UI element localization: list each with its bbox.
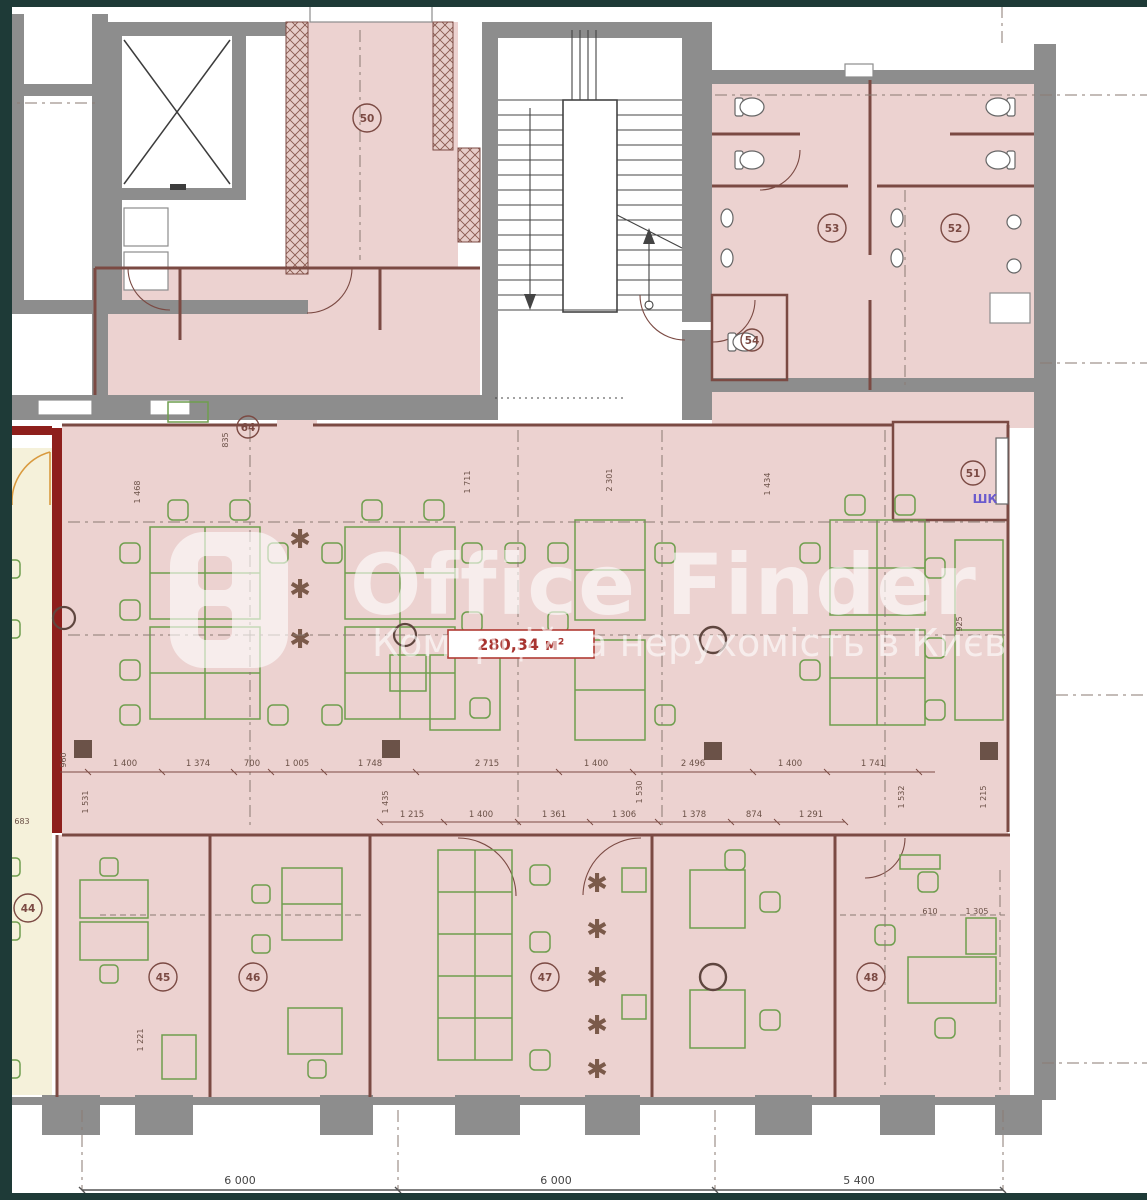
room-number-52: 52 xyxy=(948,223,963,235)
room-number-51: 51 xyxy=(966,468,981,480)
svg-text:✱: ✱ xyxy=(289,575,311,605)
dim-label-small: 610 xyxy=(922,907,937,916)
room-number-44: 44 xyxy=(21,903,36,915)
dim-label-v: 1 435 xyxy=(381,791,390,814)
dim-label-v: 960 xyxy=(59,752,68,767)
dim-label: 1 400 xyxy=(113,759,137,769)
dim-label: 1 748 xyxy=(358,759,382,769)
dim-label: 1 378 xyxy=(682,810,706,820)
room-number-47: 47 xyxy=(538,972,553,984)
dim-label: 874 xyxy=(746,810,762,820)
watermark-brand: Office Finder xyxy=(350,536,977,634)
watermark-tagline: Комерційна нерухомість в Києві xyxy=(372,621,1017,665)
dim-label-small: 1 305 xyxy=(966,907,989,916)
dim-label-v: 1 531 xyxy=(81,791,90,814)
radiator xyxy=(996,438,1008,504)
dim-label: 683 xyxy=(14,817,29,826)
svg-text:✱: ✱ xyxy=(586,869,608,899)
dim-label: 1 400 xyxy=(584,759,608,769)
svg-text:✱: ✱ xyxy=(586,1055,608,1085)
dim-label: 700 xyxy=(244,759,260,769)
dim-label: 1 215 xyxy=(400,810,424,820)
dim-label-v: 1 215 xyxy=(979,786,988,809)
dim-label-v: 1 711 xyxy=(463,471,472,494)
room-number-50: 50 xyxy=(360,113,375,125)
dim-label: 1 400 xyxy=(469,810,493,820)
dim-label-v: 1 221 xyxy=(136,1029,145,1052)
grid-dim-label: 5 400 xyxy=(843,1174,875,1187)
svg-text:✱: ✱ xyxy=(586,1011,608,1041)
grid-dim-label: 6 000 xyxy=(224,1174,256,1187)
svg-text:✱: ✱ xyxy=(586,915,608,945)
room-number-54: 54 xyxy=(745,335,760,347)
dim-label: 1 361 xyxy=(542,810,566,820)
dim-label-v: 1 530 xyxy=(635,781,644,804)
dim-label-v: 2 301 xyxy=(605,469,614,492)
svg-text:✱: ✱ xyxy=(289,625,311,655)
elevator xyxy=(122,36,232,190)
floor-plan-svg: ✱✱✱ ✱✱✱ ✱✱ xyxy=(0,0,1147,1200)
room-number-45: 45 xyxy=(156,972,171,984)
dim-label-v: 1 434 xyxy=(763,473,772,496)
dim-label: 2 715 xyxy=(475,759,499,769)
dim-label: 1 741 xyxy=(861,759,885,769)
dim-label-v: 1 468 xyxy=(133,481,142,504)
dim-label: 2 496 xyxy=(681,759,705,769)
svg-text:✱: ✱ xyxy=(586,963,608,993)
room-number-46: 46 xyxy=(246,972,261,984)
floor-plan-screenshot: ✱✱✱ ✱✱✱ ✱✱ xyxy=(0,0,1147,1200)
dim-label: 1 306 xyxy=(612,810,636,820)
dim-label-v: 835 xyxy=(221,432,230,447)
room-number-53: 53 xyxy=(825,223,840,235)
watermark-logo xyxy=(170,532,288,668)
grid-dim-label: 6 000 xyxy=(540,1174,572,1187)
dim-label-v: 1 532 xyxy=(897,786,906,809)
dim-label: 1 400 xyxy=(778,759,802,769)
svg-text:✱: ✱ xyxy=(289,525,311,555)
dim-label: 1 005 xyxy=(285,759,309,769)
room-number-64: 64 xyxy=(241,422,256,434)
wardrobe-label: ШК xyxy=(973,492,998,506)
dim-label: 1 374 xyxy=(186,759,210,769)
room-number-48: 48 xyxy=(864,972,879,984)
dim-label: 1 291 xyxy=(799,810,823,820)
